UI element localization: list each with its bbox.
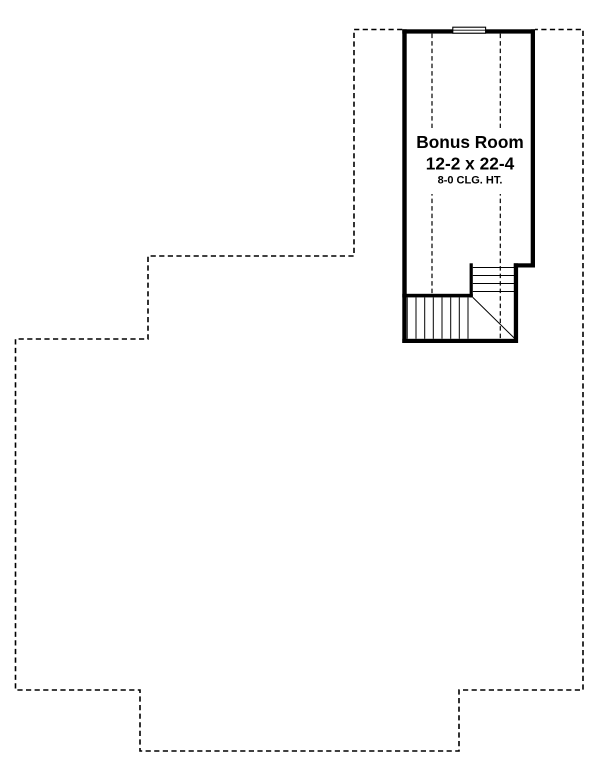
svg-text:Bonus Room: Bonus Room [416,132,524,152]
svg-text:12-2 x 22-4: 12-2 x 22-4 [426,154,515,174]
svg-text:8-0 CLG. HT.: 8-0 CLG. HT. [438,175,503,187]
